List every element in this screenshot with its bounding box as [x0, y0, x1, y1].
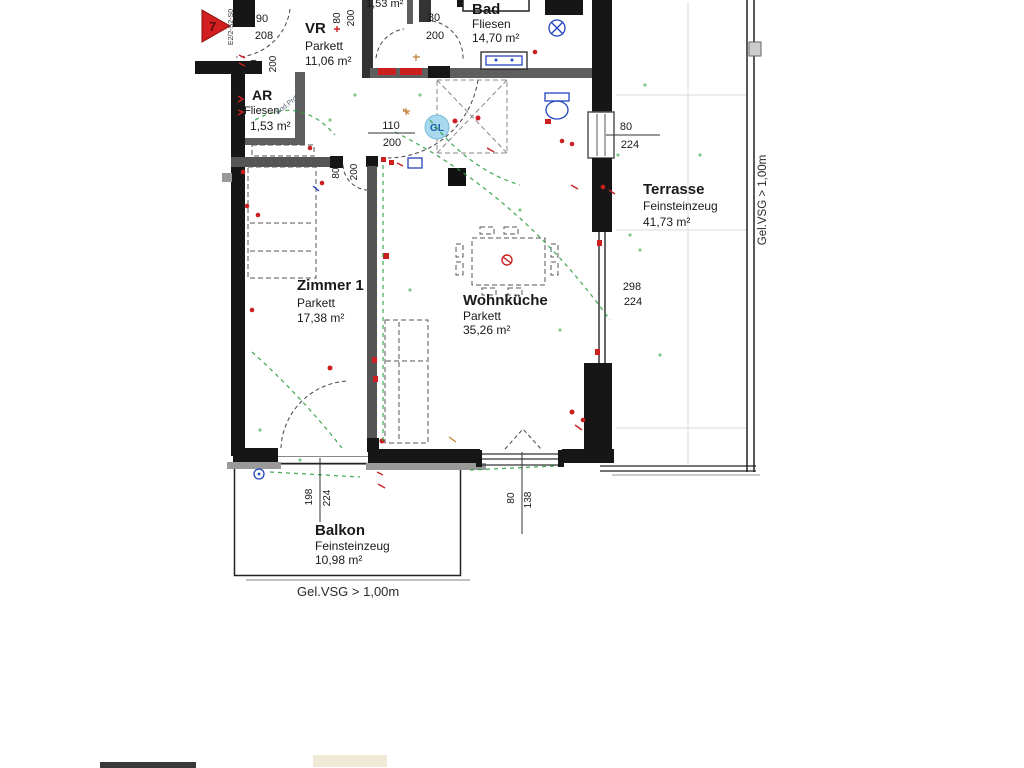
railing-note-bottom: Gel.VSG > 1,00m — [297, 584, 399, 599]
room-label-vr: VR Parkett 11,06 m² — [305, 20, 351, 68]
column — [448, 168, 466, 186]
room-label-terrasse: Terrasse Feinsteinzeug 41,73 m² — [643, 181, 718, 229]
dim-door-wohnkueche: 110 200 — [368, 120, 415, 149]
dim-door-bad: 80 200 — [426, 12, 444, 42]
dim-height: 200 — [426, 30, 444, 42]
window-bottom-glass — [476, 450, 564, 467]
railing-clamp — [749, 42, 761, 56]
dim-height: 200 — [346, 9, 357, 26]
room-name: Zimmer 1 — [297, 277, 364, 294]
top-room-area-clipped: 1,53 m² — [366, 0, 404, 10]
socket-symbol — [408, 158, 422, 168]
terrace-railing — [600, 0, 761, 475]
room-floor: Feinsteinzeug — [643, 199, 718, 213]
room-label-balkon: Balkon Feinsteinzeug 10,98 m² — [315, 522, 390, 567]
room-name: Bad — [472, 1, 500, 18]
marker-code: E2/2-S2-S0 — [228, 9, 235, 45]
dim-width: 80 — [331, 167, 342, 179]
dim-height: 200 — [268, 55, 279, 72]
dim-height: 200 — [349, 163, 360, 180]
dim-height: 138 — [523, 491, 534, 508]
room-label-ar: AR Fliesen 1,53 m² Bod.Prd.+ — [244, 87, 304, 133]
fire-marking — [378, 68, 396, 75]
dim-height: 224 — [621, 139, 639, 151]
room-area: 17,38 m² — [297, 311, 344, 325]
room-name: Terrasse — [643, 181, 704, 198]
bottom-edge-fragment — [100, 755, 387, 768]
dim-door-entry: 90 208 — [255, 13, 273, 42]
dim-width: 198 — [304, 488, 315, 505]
dim-door-top: 80 200 — [332, 9, 357, 26]
dim-width: 110 — [382, 120, 400, 132]
room-floor: Parkett — [463, 309, 502, 323]
gl-symbol: GL — [425, 115, 449, 139]
terrace-grid — [616, 2, 746, 464]
room-name: VR — [305, 20, 326, 37]
dim-window-bottom: 80 138 — [506, 452, 534, 534]
room-name: AR — [252, 87, 272, 103]
dim-door-ar: 80 200 — [249, 55, 279, 72]
room-label-zimmer1: Zimmer 1 Parkett 17,38 m² — [297, 277, 364, 325]
dim-height: 224 — [322, 489, 333, 506]
dim-door-terrasse: 298 224 — [623, 281, 642, 308]
dim-width: 80 — [428, 12, 440, 24]
room-name: Balkon — [315, 522, 365, 539]
room-floor: Parkett — [297, 296, 336, 310]
floorplan-canvas: GL — [0, 0, 1024, 768]
room-area: 11,06 m² — [305, 54, 351, 68]
dim-width: 90 — [256, 13, 268, 25]
room-floor: Parkett — [305, 39, 344, 53]
room-area: 41,73 m² — [643, 215, 690, 229]
room-area: 14,70 m² — [472, 31, 519, 45]
dim-door-balkon: 198 224 — [304, 458, 333, 522]
floorplan-drawing: GL — [0, 0, 1024, 768]
room-label-wohnkueche: Wohnküche Parkett 35,26 m² — [463, 292, 548, 337]
railing-note-right: Gel.VSG > 1,00m — [757, 155, 769, 245]
room-name: Wohnküche — [463, 292, 548, 309]
dim-width: 80 — [620, 121, 632, 133]
dim-height: 200 — [383, 137, 401, 149]
dining-table — [456, 227, 558, 295]
toilet — [545, 93, 569, 119]
room-floor: Feinsteinzeug — [315, 539, 390, 553]
shaft-hatch — [437, 80, 507, 153]
misc-symbols — [403, 54, 456, 442]
room-area: 10,98 m² — [315, 553, 362, 567]
dim-height: 224 — [624, 296, 642, 308]
fire-marking — [400, 68, 422, 75]
terrace-glass-door — [599, 232, 605, 363]
dim-height: 208 — [255, 30, 273, 42]
marker-number: 7 — [209, 19, 216, 34]
dim-width: 80 — [332, 12, 343, 24]
dim-width: 298 — [623, 281, 641, 293]
washbasin — [481, 52, 527, 69]
plan-marker: 7 E2/2-S2-S0 — [202, 9, 235, 45]
room-area: 35,26 m² — [463, 323, 510, 337]
room-floor: Fliesen — [472, 17, 511, 31]
dim-width: 80 — [249, 59, 260, 71]
room-area: 1,53 m² — [250, 119, 291, 133]
dim-width: 80 — [506, 492, 517, 504]
kitchen-unit — [385, 320, 428, 443]
ceiling-lamp — [549, 20, 565, 36]
